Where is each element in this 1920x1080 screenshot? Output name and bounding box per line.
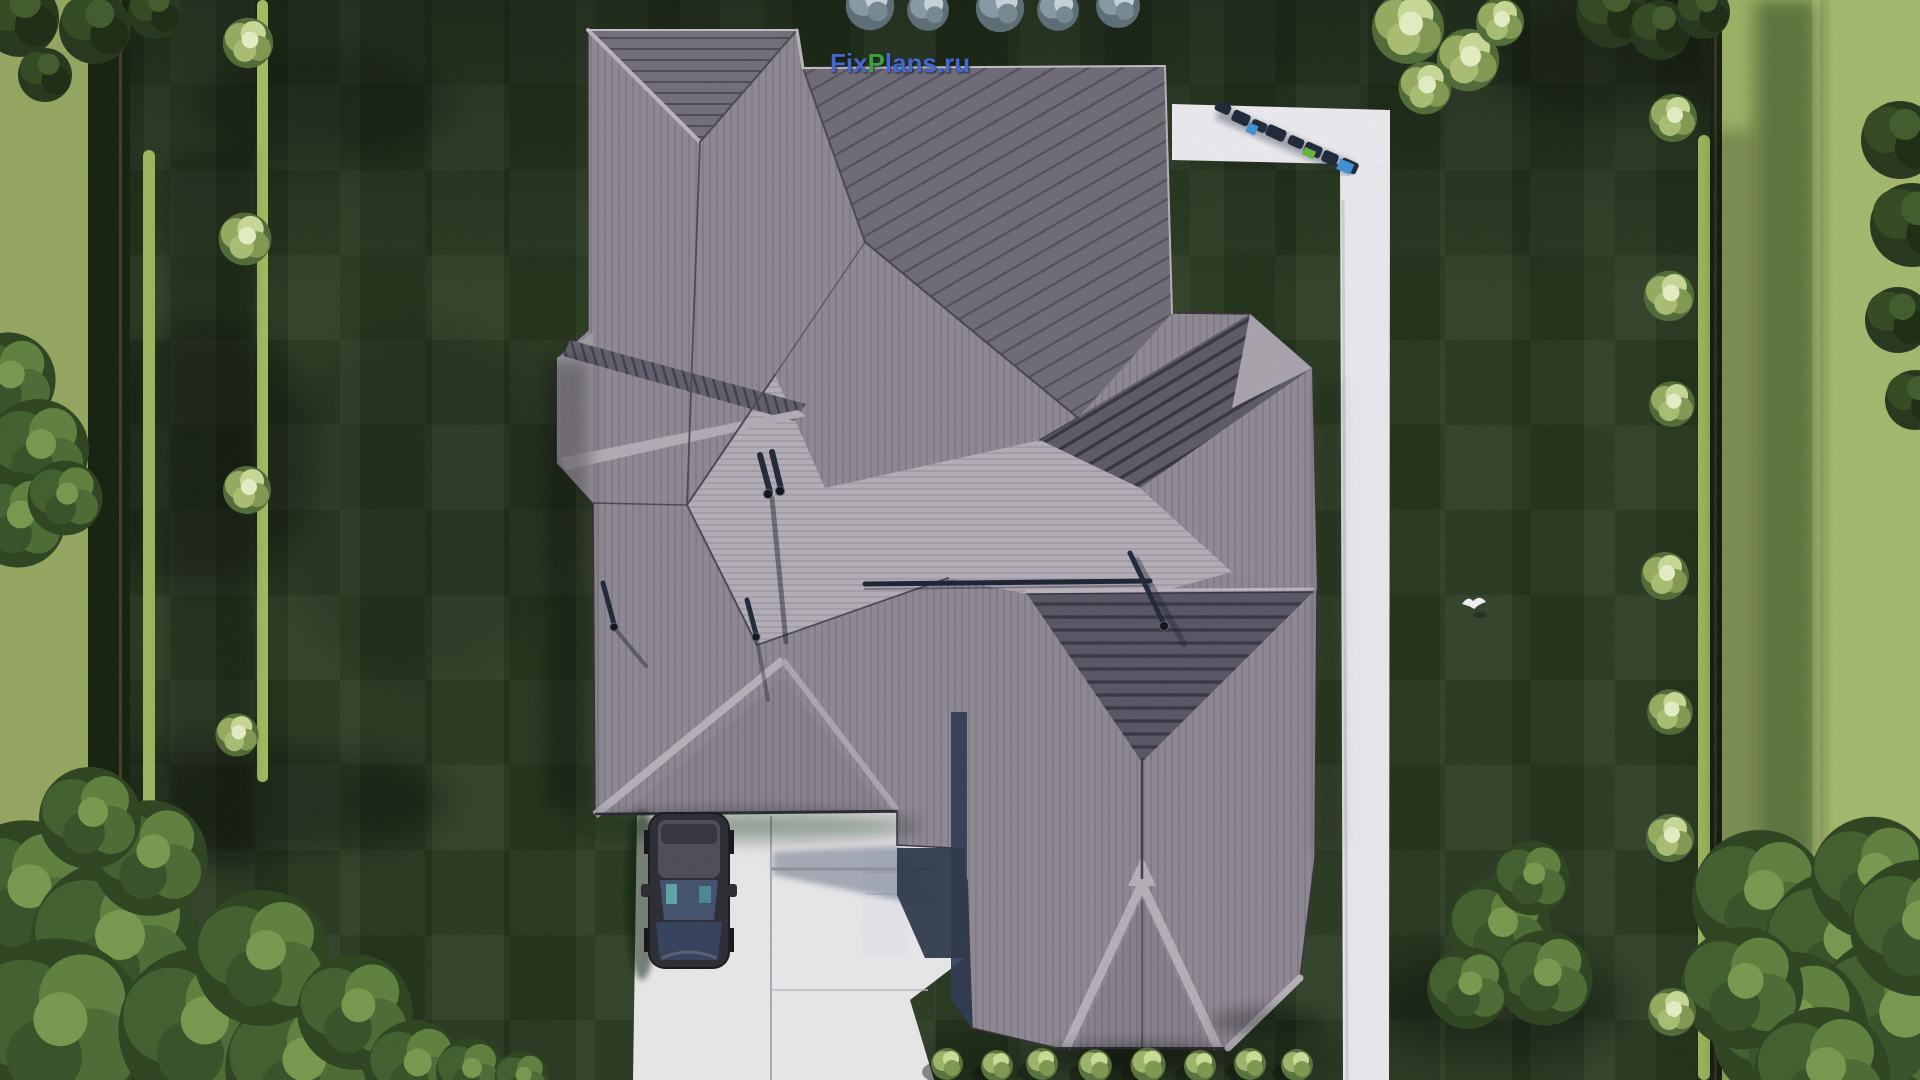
grain-overlay (0, 0, 1920, 1080)
scene-svg (0, 0, 1920, 1080)
watermark-fixplans: FixPlans.ru (830, 50, 970, 76)
watermark-text-fix: Fix (830, 48, 868, 78)
aerial-render: FixPlans.ru (0, 0, 1920, 1080)
watermark-text-lans-ru: lans.ru (885, 48, 970, 78)
watermark-text-p: P (868, 48, 885, 78)
